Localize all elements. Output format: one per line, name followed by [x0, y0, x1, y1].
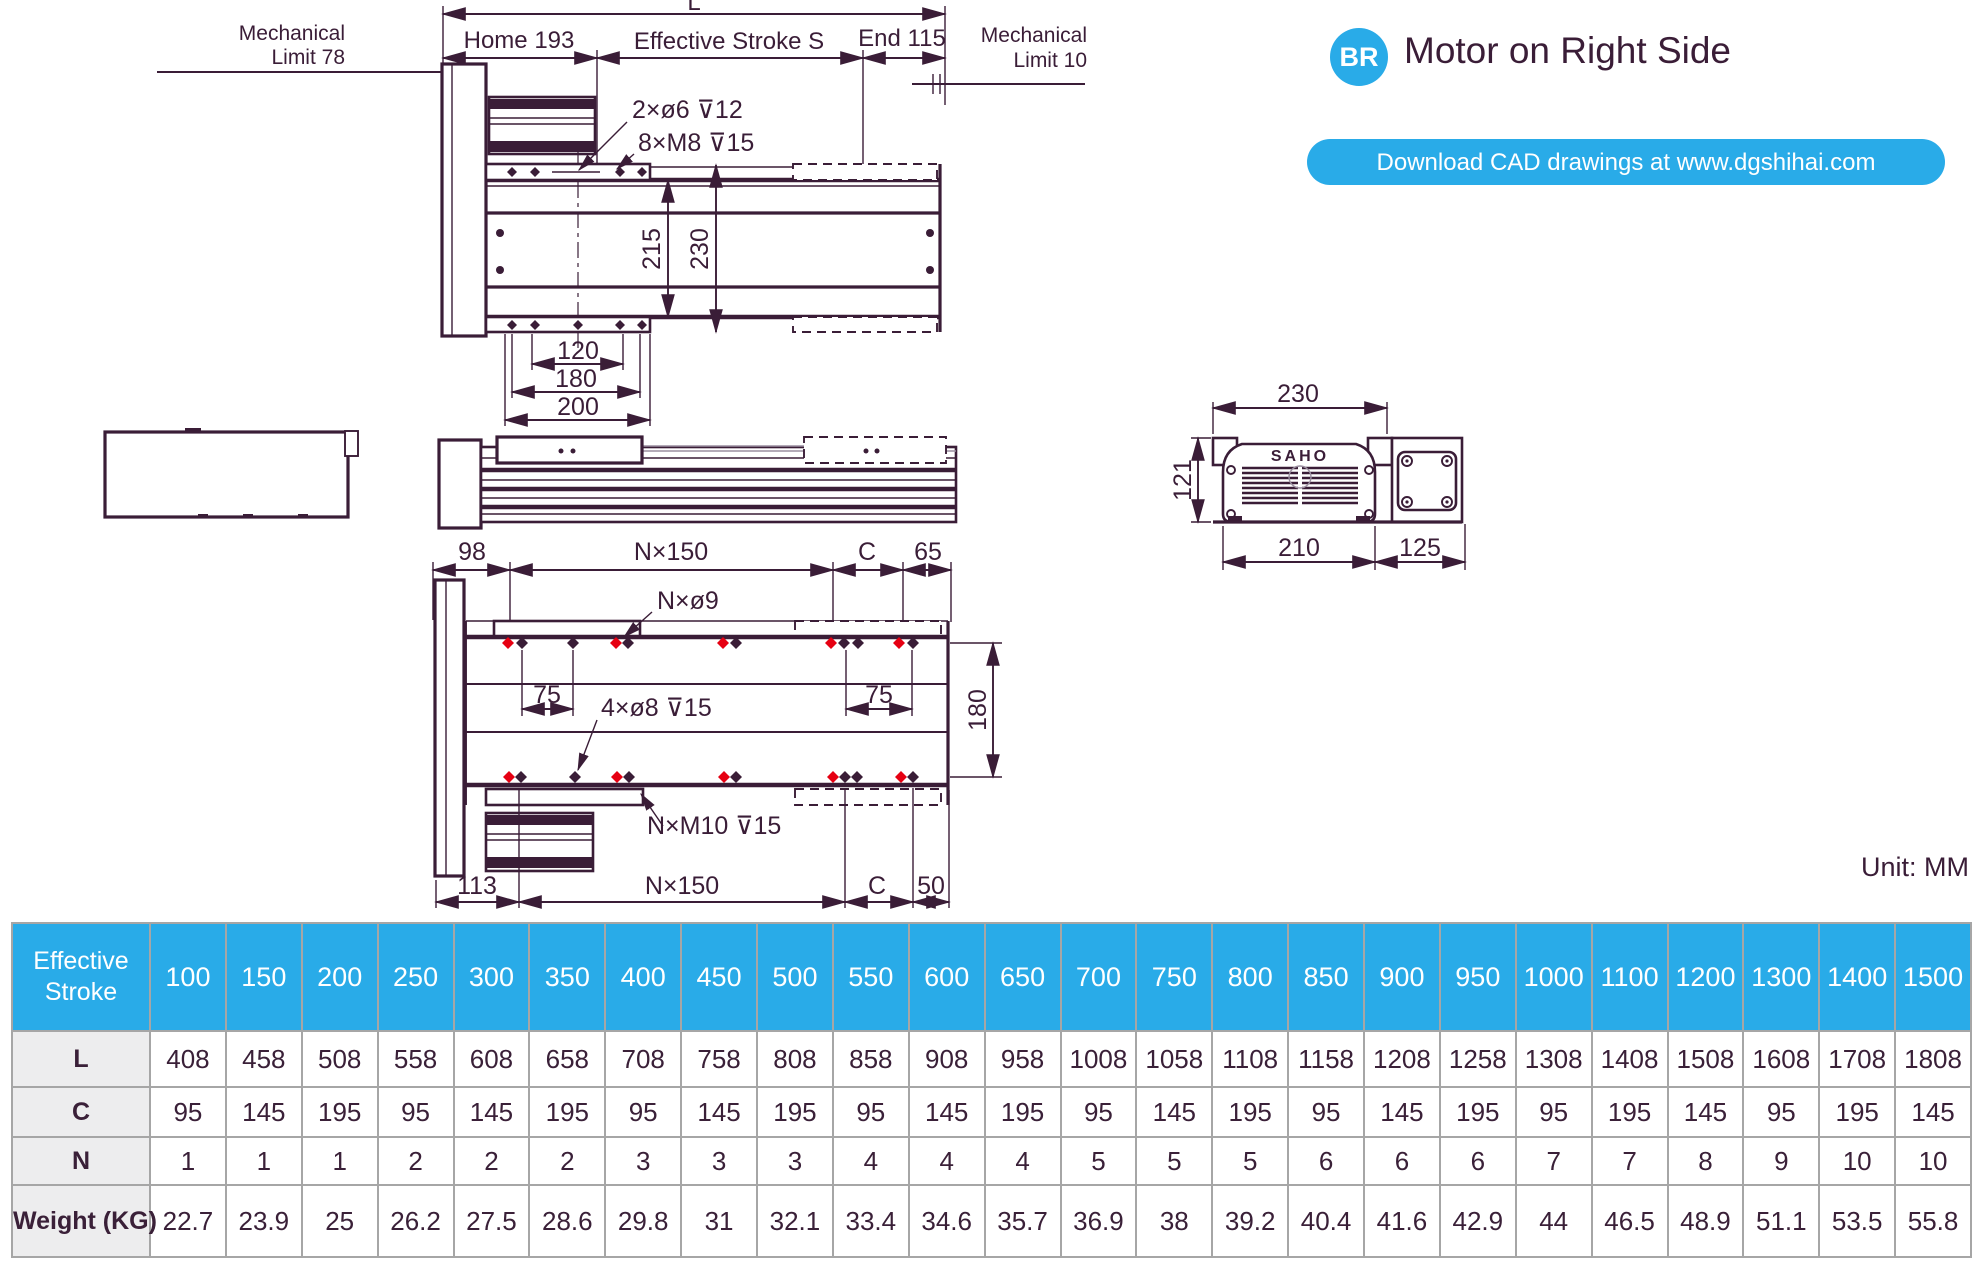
br-badge: BR — [1330, 28, 1388, 86]
mech-limit-right-line1: Mechanical — [981, 24, 1087, 47]
dim-125-label: 125 — [1399, 534, 1441, 562]
spec-table: Effective Stroke100150200250300350400450… — [11, 922, 1972, 1258]
value-cell: 558 — [378, 1031, 454, 1087]
holes-annotation-2: 8×M8 ⊽15 — [638, 129, 754, 157]
row-header-cell: N — [12, 1137, 150, 1185]
row-header-cell: Weight (KG) — [12, 1185, 150, 1257]
value-cell: 1708 — [1819, 1031, 1895, 1087]
dim-end-label: End 115 — [858, 25, 946, 52]
dim-75-left-label: 75 — [533, 681, 561, 709]
value-cell: 39.2 — [1212, 1185, 1288, 1257]
value-cell: 95 — [833, 1087, 909, 1137]
dim-98-label: 98 — [458, 538, 486, 566]
value-cell: 195 — [1440, 1087, 1516, 1137]
value-cell: 5 — [1136, 1137, 1212, 1185]
table-row: Weight (KG)22.723.92526.227.528.629.8313… — [12, 1185, 1971, 1257]
stroke-column-header-cell: 1300 — [1743, 923, 1819, 1031]
value-cell: 145 — [1668, 1087, 1744, 1137]
stroke-column-header-cell: 850 — [1288, 923, 1364, 1031]
mech-limit-left-line1: Mechanical — [239, 22, 345, 45]
value-cell: 145 — [681, 1087, 757, 1137]
value-cell: 458 — [226, 1031, 302, 1087]
value-cell: 1 — [302, 1137, 378, 1185]
holes-annotation-1: 2×ø6 ⊽12 — [632, 96, 743, 124]
holes-annotation-n9: N×ø9 — [657, 587, 719, 615]
end-bracket — [442, 64, 486, 336]
value-cell: 95 — [605, 1087, 681, 1137]
stroke-column-header-cell: 1100 — [1592, 923, 1668, 1031]
side-view — [439, 437, 956, 528]
value-cell: 26.2 — [378, 1185, 454, 1257]
dim-n150-top-label: N×150 — [634, 538, 708, 566]
value-cell: 6 — [1440, 1137, 1516, 1185]
value-cell: 5 — [1061, 1137, 1137, 1185]
value-cell: 4 — [909, 1137, 985, 1185]
dim-215-label: 215 — [638, 228, 666, 270]
motor-block-bottom — [486, 813, 593, 871]
stroke-column-header-cell: 300 — [454, 923, 530, 1031]
motor-block-top — [489, 97, 595, 154]
mech-limit-right-line2: Limit 10 — [1013, 49, 1087, 72]
dim-50-label: 50 — [917, 872, 945, 900]
value-cell: 4 — [985, 1137, 1061, 1185]
value-cell: 28.6 — [529, 1185, 605, 1257]
dim-121-label: 121 — [1169, 459, 1197, 501]
value-cell: 508 — [302, 1031, 378, 1087]
value-cell: 48.9 — [1668, 1185, 1744, 1257]
value-cell: 95 — [1061, 1087, 1137, 1137]
stroke-column-header-cell: 350 — [529, 923, 605, 1031]
stroke-column-header-cell: 1200 — [1668, 923, 1744, 1031]
table-row: N11122233344455566677891010 — [12, 1137, 1971, 1185]
value-cell: 4 — [833, 1137, 909, 1185]
value-cell: 23.9 — [226, 1185, 302, 1257]
value-cell: 658 — [529, 1031, 605, 1087]
value-cell: 95 — [1516, 1087, 1592, 1137]
value-cell: 53.5 — [1819, 1185, 1895, 1257]
value-cell: 145 — [454, 1087, 530, 1137]
value-cell: 51.1 — [1743, 1185, 1819, 1257]
value-cell: 195 — [985, 1087, 1061, 1137]
stroke-column-header-cell: 1000 — [1516, 923, 1592, 1031]
holes-annotation-nm10: N×M10 ⊽15 — [647, 812, 781, 840]
value-cell: 27.5 — [454, 1185, 530, 1257]
value-cell: 29.8 — [605, 1185, 681, 1257]
dim-113-label: 113 — [457, 872, 497, 900]
value-cell: 34.6 — [909, 1185, 985, 1257]
stroke-column-header-cell: 450 — [681, 923, 757, 1031]
dim-home-label: Home 193 — [464, 27, 575, 54]
value-cell: 10 — [1895, 1137, 1971, 1185]
value-cell: 5 — [1212, 1137, 1288, 1185]
dim-120-label: 120 — [557, 337, 599, 365]
stroke-column-header-cell: 650 — [985, 923, 1061, 1031]
end-view: 230 SAHO — [1169, 380, 1465, 570]
value-cell: 1808 — [1895, 1031, 1971, 1087]
dim-210-label: 210 — [1278, 534, 1320, 562]
dim-180-label: 180 — [555, 365, 597, 393]
dim-n150-bottom-label: N×150 — [645, 872, 719, 900]
value-cell: 195 — [302, 1087, 378, 1137]
carriage-side-solid — [497, 437, 642, 463]
hole-markers-bottom-row — [503, 771, 919, 783]
stroke-column-header-cell: 150 — [226, 923, 302, 1031]
dim-230-label: 230 — [686, 228, 714, 270]
value-cell: 195 — [1819, 1087, 1895, 1137]
value-cell: 35.7 — [985, 1185, 1061, 1257]
value-cell: 33.4 — [833, 1185, 909, 1257]
value-cell: 95 — [1743, 1087, 1819, 1137]
value-cell: 1 — [150, 1137, 226, 1185]
spec-table-body: Effective Stroke100150200250300350400450… — [12, 923, 1971, 1257]
value-cell: 145 — [1895, 1087, 1971, 1137]
value-cell: 1308 — [1516, 1031, 1592, 1087]
dim-65-label: 65 — [914, 538, 942, 566]
value-cell: 958 — [985, 1031, 1061, 1087]
value-cell: 40.4 — [1288, 1185, 1364, 1257]
value-cell: 3 — [681, 1137, 757, 1185]
value-cell: 7 — [1516, 1137, 1592, 1185]
value-cell: 145 — [226, 1087, 302, 1137]
value-cell: 195 — [1212, 1087, 1288, 1137]
stroke-column-header-cell: 700 — [1061, 923, 1137, 1031]
value-cell: 1508 — [1668, 1031, 1744, 1087]
dim-180-right-label: 180 — [964, 689, 992, 731]
row-header-cell: L — [12, 1031, 150, 1087]
value-cell: 32.1 — [757, 1185, 833, 1257]
stroke-column-header-cell: 250 — [378, 923, 454, 1031]
value-cell: 95 — [150, 1087, 226, 1137]
value-cell: 9 — [1743, 1137, 1819, 1185]
small-side-view — [105, 428, 358, 518]
dim-230-end-label: 230 — [1277, 380, 1319, 408]
dim-stroke-label: Effective Stroke S — [634, 28, 824, 55]
value-cell: 1208 — [1364, 1031, 1440, 1087]
effective-stroke-header-cell: Effective Stroke — [12, 923, 150, 1031]
value-cell: 608 — [454, 1031, 530, 1087]
dim-c-top-label: C — [858, 538, 876, 566]
stroke-column-header-cell: 500 — [757, 923, 833, 1031]
download-cad-button[interactable]: Download CAD drawings at www.dgshihai.co… — [1307, 139, 1945, 185]
stroke-column-header-cell: 550 — [833, 923, 909, 1031]
value-cell: 1058 — [1136, 1031, 1212, 1087]
value-cell: 1108 — [1212, 1031, 1288, 1087]
page-title: Motor on Right Side — [1404, 30, 1731, 72]
motor-flange — [1398, 452, 1456, 510]
stroke-column-header-cell: 200 — [302, 923, 378, 1031]
stroke-column-header-cell: 600 — [909, 923, 985, 1031]
carriage-side-phantom — [804, 437, 946, 463]
table-row: C951451959514519595145195951451959514519… — [12, 1087, 1971, 1137]
value-cell: 1408 — [1592, 1031, 1668, 1087]
value-cell: 3 — [605, 1137, 681, 1185]
stroke-column-header-cell: 950 — [1440, 923, 1516, 1031]
value-cell: 2 — [529, 1137, 605, 1185]
value-cell: 408 — [150, 1031, 226, 1087]
value-cell: 42.9 — [1440, 1185, 1516, 1257]
value-cell: 95 — [1288, 1087, 1364, 1137]
holes-annotation-4x8: 4×ø8 ⊽15 — [601, 694, 712, 722]
table-row: L408458508558608658708758808858908958100… — [12, 1031, 1971, 1087]
technical-drawing: L Home 193 Effective Stroke S End 115 Me… — [0, 0, 1983, 918]
value-cell: 95 — [378, 1087, 454, 1137]
end-bracket-bottom — [435, 580, 464, 876]
value-cell: 38 — [1136, 1185, 1212, 1257]
value-cell: 44 — [1516, 1185, 1592, 1257]
unit-label: Unit: MM — [1861, 852, 1969, 883]
value-cell: 858 — [833, 1031, 909, 1087]
value-cell: 10 — [1819, 1137, 1895, 1185]
value-cell: 2 — [378, 1137, 454, 1185]
value-cell: 8 — [1668, 1137, 1744, 1185]
value-cell: 145 — [1364, 1087, 1440, 1137]
value-cell: 41.6 — [1364, 1185, 1440, 1257]
mech-limit-left-line2: Limit 78 — [271, 46, 345, 69]
value-cell: 46.5 — [1592, 1185, 1668, 1257]
value-cell: 1258 — [1440, 1031, 1516, 1087]
table-header-row: Effective Stroke100150200250300350400450… — [12, 923, 1971, 1031]
stroke-column-header-cell: 400 — [605, 923, 681, 1031]
dim-75-right-label: 75 — [865, 681, 893, 709]
value-cell: 145 — [1136, 1087, 1212, 1137]
stroke-column-header-cell: 1400 — [1819, 923, 1895, 1031]
value-cell: 808 — [757, 1031, 833, 1087]
stroke-column-header-cell: 900 — [1364, 923, 1440, 1031]
bottom-view: 98 N×150 C 65 — [433, 538, 1002, 908]
value-cell: 55.8 — [1895, 1185, 1971, 1257]
value-cell: 7 — [1592, 1137, 1668, 1185]
value-cell: 195 — [757, 1087, 833, 1137]
dim-c-bottom-label: C — [868, 872, 886, 900]
value-cell: 145 — [909, 1087, 985, 1137]
brand-logo: SAHO — [1271, 448, 1329, 465]
value-cell: 6 — [1288, 1137, 1364, 1185]
value-cell: 25 — [302, 1185, 378, 1257]
value-cell: 195 — [1592, 1087, 1668, 1137]
row-header-cell: C — [12, 1087, 150, 1137]
value-cell: 31 — [681, 1185, 757, 1257]
stroke-column-header-cell: 800 — [1212, 923, 1288, 1031]
value-cell: 908 — [909, 1031, 985, 1087]
value-cell: 3 — [757, 1137, 833, 1185]
stroke-column-header-cell: 1500 — [1895, 923, 1971, 1031]
value-cell: 758 — [681, 1031, 757, 1087]
value-cell: 1158 — [1288, 1031, 1364, 1087]
value-cell: 1 — [226, 1137, 302, 1185]
value-cell: 22.7 — [150, 1185, 226, 1257]
value-cell: 1608 — [1743, 1031, 1819, 1087]
value-cell: 195 — [529, 1087, 605, 1137]
top-view: L Home 193 Effective Stroke S End 115 Me… — [157, 0, 1087, 426]
stroke-column-header-cell: 100 — [150, 923, 226, 1031]
value-cell: 1008 — [1061, 1031, 1137, 1087]
dim-200-label: 200 — [557, 393, 599, 421]
value-cell: 36.9 — [1061, 1185, 1137, 1257]
value-cell: 708 — [605, 1031, 681, 1087]
value-cell: 6 — [1364, 1137, 1440, 1185]
dim-L-label: L — [687, 0, 700, 16]
value-cell: 2 — [454, 1137, 530, 1185]
stroke-column-header-cell: 750 — [1136, 923, 1212, 1031]
